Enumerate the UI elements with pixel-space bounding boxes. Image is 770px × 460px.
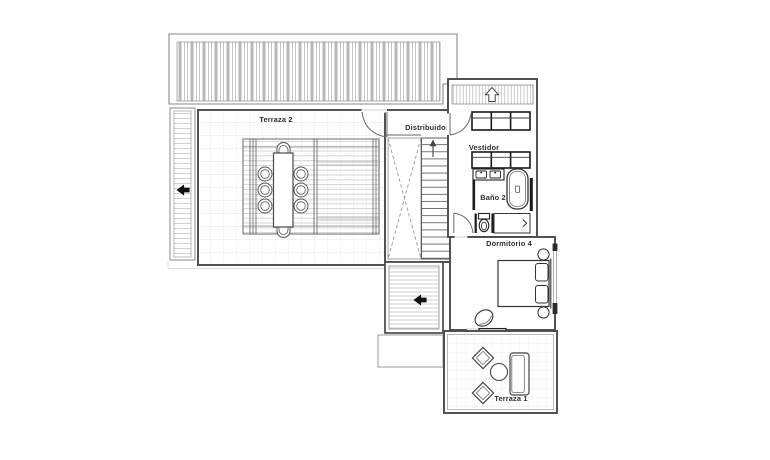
room-label-distribuidor: Distribuidor [405,123,449,132]
deck-dining-area [243,139,379,237]
wardrobe-row-2 [472,152,530,168]
dining-table [274,153,294,227]
round-side-table [491,364,508,381]
window-pier [530,178,533,211]
floor-plan: Terraza 2 [0,0,770,460]
room-dormitorio-4: Dormitorio 4 [450,235,558,333]
room-label-terraza-1: Terraza 1 [494,394,527,403]
bedside-lamp [538,249,549,260]
bedside-lamp [538,307,549,318]
room-label-vestidor: Vestidor [469,143,499,152]
partition-wall [473,180,476,210]
pillow [536,264,549,282]
room-label-bano-2: Baño 2 [480,193,506,202]
room-label-dormitorio-4: Dormitorio 4 [486,239,532,248]
outdoor-sofa [510,353,529,395]
pergola [169,34,457,104]
room-terraza-1: Terraza 1 [444,331,557,413]
bedroom-window [552,244,558,315]
toilet [479,214,490,232]
room-label-terraza-2: Terraza 2 [259,115,292,124]
double-sink-vanity [473,169,504,180]
louver-roof-deck [378,262,443,367]
pergola-slats [177,42,440,101]
floor-plan-canvas: Terraza 2 [0,0,770,460]
shower [494,214,530,234]
wardrobe-row-1 [472,112,530,130]
bathtub [507,169,528,209]
double-height-void [388,138,421,259]
pillow [536,286,549,304]
lower-landing [378,335,443,367]
stairs [422,138,451,259]
vestidor-bano-block: Vestidor Baño 2 [447,79,538,237]
planter-strip [170,108,195,260]
